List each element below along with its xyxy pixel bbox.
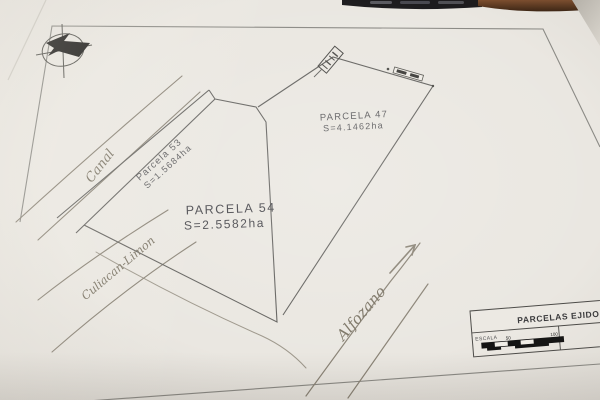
scale-tick: 50 — [506, 335, 512, 340]
parcel-54-area: S=2.5582ha — [184, 216, 266, 233]
blurred-text-smudge — [438, 1, 464, 4]
blurred-text-smudge — [400, 1, 430, 4]
scale-tick: 100 — [550, 331, 558, 337]
photographed-parcel-map: PARCELA 47 S=4.1462ha Parcela 53 S=1.568… — [0, 0, 600, 400]
boundary-tick — [387, 68, 390, 71]
blurred-text-smudge — [370, 1, 392, 4]
boundary-tick — [432, 85, 434, 87]
